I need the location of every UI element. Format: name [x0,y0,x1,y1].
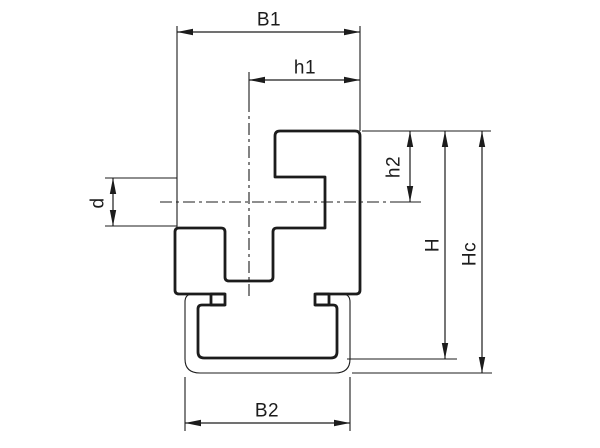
arrow-h-bottom [442,343,448,359]
dim-label-b1: B1 [257,11,281,30]
arrow-d-bottom [110,210,116,226]
dim-label-b2: B2 [255,402,279,421]
arrow-h2-top [407,131,413,147]
dim-label-d: d [89,197,108,208]
arrow-b1-left [177,29,193,35]
dim-label-h1: h1 [294,59,316,78]
arrow-hc-bottom [479,357,485,373]
arrow-b1-right [344,29,360,35]
arrow-h-top [442,131,448,147]
technical-drawing-canvas: B1 h1 h2 d H Hc B2 [0,0,600,448]
arrow-b2-left [185,420,201,426]
arrow-b2-right [334,420,350,426]
dim-label-h: H [424,238,443,252]
arrow-d-top [110,178,116,194]
arrow-h1-right [344,77,360,83]
c-rail-lip-right [315,294,329,305]
guide-profile-body [175,131,360,294]
dim-label-hc: Hc [461,242,480,266]
dim-label-h2: h2 [385,156,404,178]
arrow-hc-top [479,131,485,147]
c-rail-inner [198,305,337,358]
c-rail-lip-left [211,294,225,305]
arrow-h2-bottom [407,186,413,202]
arrow-h1-left [249,77,265,83]
